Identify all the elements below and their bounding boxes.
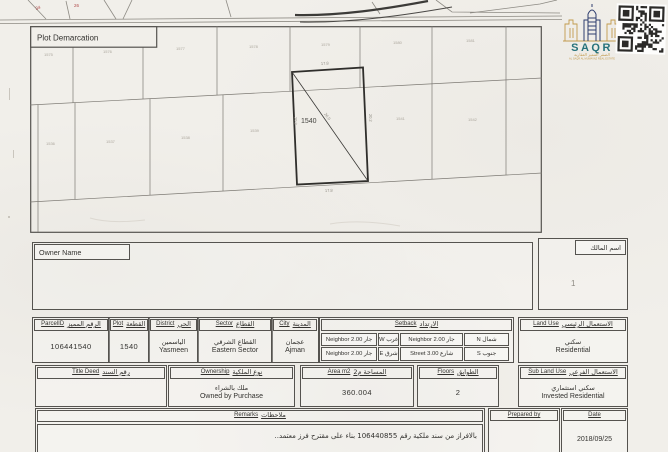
svg-text:20.2: 20.2 xyxy=(368,114,373,123)
setback-south-value: شارع Street 3.00 xyxy=(400,347,463,361)
plot-dimension-labels: 17.8 17.8 20.2 20.2 26.9 xyxy=(293,60,373,193)
plot-header-ar: القطعة xyxy=(126,321,145,329)
svg-text:1539: 1539 xyxy=(250,128,260,133)
district-value-ar: الياسمين xyxy=(162,338,186,346)
setback-header-ar: الارتداد xyxy=(420,321,439,329)
svg-text:1542: 1542 xyxy=(468,117,478,122)
sector-value-ar: القطاع الشرقي xyxy=(214,338,256,346)
title-deed-header-en: Title Deed xyxy=(72,369,99,376)
scan-artifact xyxy=(8,216,10,218)
svg-text:1541: 1541 xyxy=(396,116,406,121)
red-survey-mark: 26 xyxy=(74,3,80,8)
logo-arabic-text: الصقر المميز العقارية xyxy=(574,52,610,57)
subject-plot-1540: 1540 17.8 17.8 20.2 20.2 26.9 xyxy=(292,60,373,193)
land-use-header-en: Land Use xyxy=(533,321,559,328)
svg-text:1536: 1536 xyxy=(46,141,56,146)
date-value: 2018/09/25 xyxy=(562,422,627,452)
map-title: Plot Demarcation xyxy=(37,34,98,43)
area-header-ar: المساحة م2 xyxy=(353,369,386,377)
city-value-en: Ajman xyxy=(285,347,305,356)
red-survey-mark: 34 xyxy=(35,4,42,10)
land-use-value-en: Residential xyxy=(556,347,591,356)
field-sub-land-use: Sub Land Useالاستعمال الفرعي سكني استثما… xyxy=(518,365,628,407)
sector-header-en: Sector xyxy=(216,321,233,328)
ownership-value-ar: ملك بالشراء xyxy=(215,384,248,392)
ownership-header-en: Ownership xyxy=(201,369,230,376)
field-plot: Plotالقطعة 1540 xyxy=(108,317,150,363)
svg-text:1579: 1579 xyxy=(321,42,331,47)
qr-code xyxy=(615,2,666,55)
sub-land-use-value-ar: سكني استثماري xyxy=(551,384,595,392)
parcel-id-value: 106441540 xyxy=(33,332,109,362)
floors-header-ar: الطوابق xyxy=(457,369,479,377)
field-sector: Sectorالقطاع القطاع الشرقيEastern Sector xyxy=(197,317,273,363)
field-city: Cityالمدينة عجمانAjman xyxy=(271,317,319,363)
owner-name-label-en: Owner Name xyxy=(34,244,130,260)
setback-south-label: جنوب S xyxy=(464,347,509,361)
sub-land-use-value-en: Invested Residential xyxy=(541,393,604,402)
svg-text:17.8: 17.8 xyxy=(325,188,334,193)
title-deed-value xyxy=(36,380,166,406)
district-header-ar: الحي xyxy=(177,321,190,329)
remarks-header-ar: ملاحظات xyxy=(261,412,286,420)
ownership-header-ar: نوع الملكية xyxy=(232,369,262,377)
remarks-text: بالافراز من سند ملكية رقم 106440855 بناء… xyxy=(37,424,483,452)
title-deed-header-ar: رقم السند xyxy=(102,369,130,377)
svg-text:1538: 1538 xyxy=(181,135,191,140)
svg-text:1575: 1575 xyxy=(44,52,54,57)
field-remarks: Remarksملاحظات بالافراز من سند ملكية رقم… xyxy=(35,408,485,452)
setback-grid: جار Neighbor 2.00 غرب W جار Neighbor 2.0… xyxy=(320,332,513,362)
sub-land-use-header-en: Sub Land Use xyxy=(528,369,566,376)
field-setback: Setbackالارتداد جار Neighbor 2.00 غرب W … xyxy=(319,317,514,363)
setback-west-value: جار Neighbor 2.00 xyxy=(321,333,377,347)
plot-demarcation-map: 1575 1576 1577 1578 1579 1580 1581 1536 … xyxy=(30,26,542,233)
setback-north-label: شمال N xyxy=(464,333,509,347)
svg-text:1576: 1576 xyxy=(103,49,113,54)
neighbour-parcel-numbers-middle: 1536 1537 1538 1539 1541 1542 xyxy=(46,116,478,146)
land-use-header-ar: الاستعمال الرئيسي xyxy=(562,321,613,329)
owner-name-label-ar: اسم المالك xyxy=(575,240,626,255)
city-header-ar: المدينة xyxy=(293,321,311,329)
scanned-plot-document: 34 26 xyxy=(0,0,668,452)
owner-faint-mark: 1 xyxy=(571,279,575,288)
prepared-by-value xyxy=(489,422,559,452)
company-logo: SAQR الصقر المميز العقارية AL SAQR AL MU… xyxy=(561,3,623,60)
scan-artifact xyxy=(9,88,10,100)
sector-value-en: Eastern Sector xyxy=(212,347,258,356)
district-header-en: District xyxy=(156,321,174,328)
svg-text:1580: 1580 xyxy=(393,40,403,45)
field-ownership: Ownershipنوع الملكية ملك بالشراءOwned by… xyxy=(168,365,295,407)
svg-text:26.9: 26.9 xyxy=(323,112,332,122)
city-header-en: City xyxy=(279,321,289,328)
ownership-value-en: Owned by Purchase xyxy=(200,393,263,402)
logo-tower-navy xyxy=(584,4,600,41)
svg-text:17.8: 17.8 xyxy=(321,60,330,66)
field-land-use: Land Useالاستعمال الرئيسي سكنيResidentia… xyxy=(518,317,628,363)
field-date: Date 2018/09/25 xyxy=(561,408,628,452)
svg-text:20.2: 20.2 xyxy=(293,117,298,126)
plot-number-label: 1540 xyxy=(301,118,317,125)
svg-text:1537: 1537 xyxy=(106,139,116,144)
svg-text:1581: 1581 xyxy=(466,38,476,43)
plot-header-en: Plot xyxy=(113,321,123,328)
setback-north-value: جار Neighbor 2.00 xyxy=(400,333,463,347)
district-value-en: Yasmeen xyxy=(159,347,188,356)
area-header-en: Area m2 xyxy=(328,369,351,376)
field-prepared-by: Prepared by xyxy=(488,408,560,452)
svg-text:1577: 1577 xyxy=(176,46,186,51)
svg-text:1578: 1578 xyxy=(249,44,259,49)
setback-east-label: شرق E xyxy=(378,347,399,361)
floors-value: 2 xyxy=(418,380,498,406)
field-district: Districtالحي الياسمينYasmeen xyxy=(148,317,199,363)
land-use-value-ar: سكني xyxy=(565,338,581,346)
setback-east-value: جار Neighbor 2.00 xyxy=(321,347,377,361)
field-title-deed: Title Deedرقم السند xyxy=(35,365,167,407)
scan-artifact xyxy=(13,150,14,158)
field-area: Area m2المساحة م2 360.004 xyxy=(300,365,414,407)
parcel-id-header-en: ParcelID xyxy=(41,321,64,328)
plot-value: 1540 xyxy=(109,332,149,362)
date-header: Date xyxy=(588,412,601,419)
logo-english-text: AL SAQR AL MUMAYAZ REAL ESTATE xyxy=(569,57,615,61)
setback-west-label: غرب W xyxy=(378,333,399,347)
floors-header-en: Floors xyxy=(437,369,454,376)
prepared-by-header: Prepared by xyxy=(508,412,541,419)
owner-name-box-arabic: اسم المالك 1 xyxy=(538,238,628,310)
parcel-id-header-ar: الرقم المميز xyxy=(67,321,101,329)
owner-name-box: Owner Name xyxy=(32,242,533,310)
field-parcel-id: ParcelIDالرقم المميز 106441540 xyxy=(32,317,110,363)
remarks-header-en: Remarks xyxy=(234,412,258,419)
sub-land-use-header-ar: الاستعمال الفرعي xyxy=(569,369,618,377)
sector-header-ar: القطاع xyxy=(236,321,254,329)
city-value-ar: عجمان xyxy=(286,338,305,346)
area-value: 360.004 xyxy=(301,380,413,406)
field-floors: Floorsالطوابق 2 xyxy=(417,365,499,407)
setback-header-en: Setback xyxy=(395,321,417,328)
